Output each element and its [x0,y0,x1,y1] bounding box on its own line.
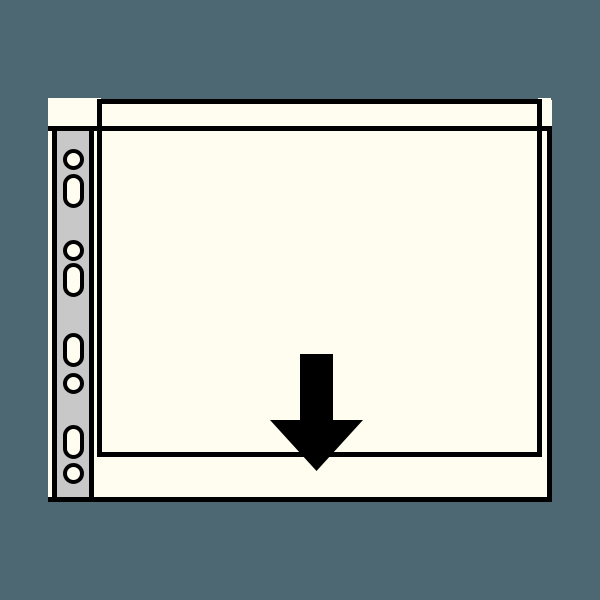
punch-hole-oblong [63,333,84,367]
punch-hole-oblong [63,263,84,297]
punch-hole-round [63,240,84,261]
punch-hole-oblong [63,174,84,208]
top-seam-line [48,126,552,131]
punch-hole-round [63,149,84,170]
punch-hole-round [63,373,84,394]
diagram-canvas [0,0,600,600]
document-pocket-outline [97,99,542,457]
punch-hole-oblong [63,425,84,459]
sheet-right-edge [547,126,552,502]
sheet-bottom-edge [48,497,552,502]
sheet-top-left-tab [48,98,101,129]
punch-hole-round [63,463,84,484]
